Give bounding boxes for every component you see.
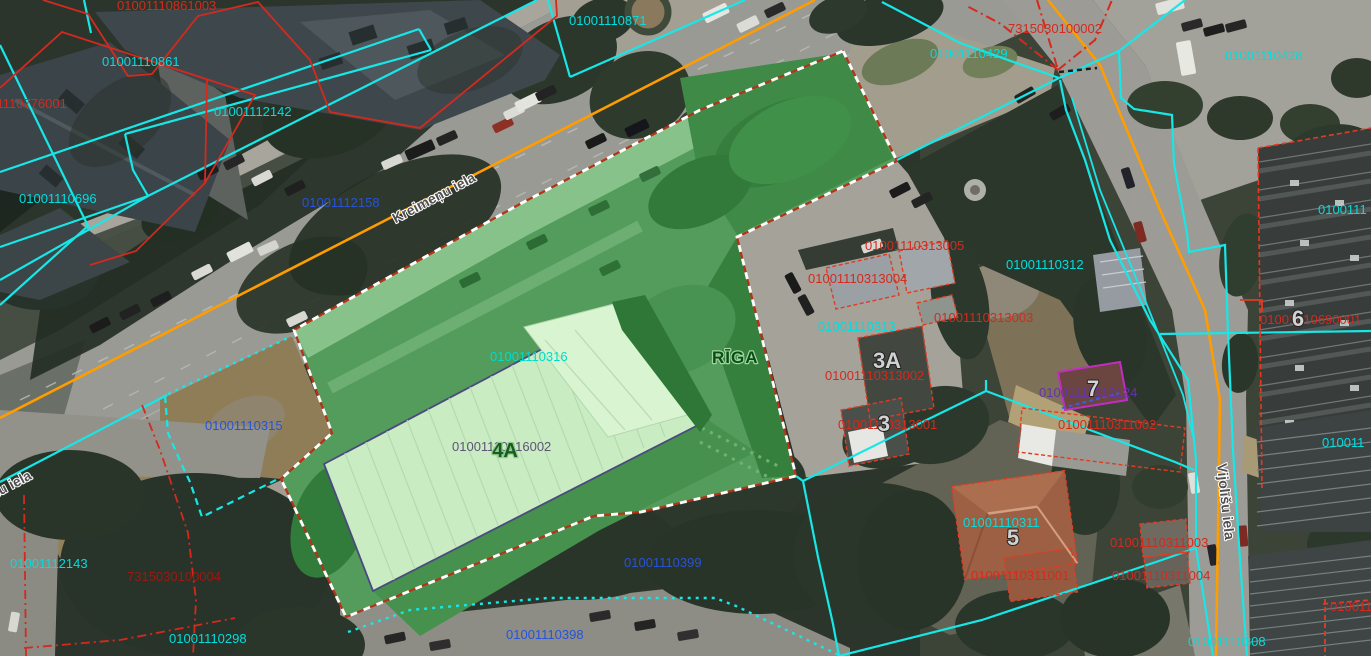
svg-text:01001110311004: 01001110311004 [1112, 568, 1210, 583]
svg-text:01001110399: 01001110399 [624, 555, 702, 570]
svg-text:01001110311003: 01001110311003 [1110, 535, 1208, 550]
svg-text:01001110871: 01001110871 [569, 13, 647, 28]
svg-text:01001112143: 01001112143 [10, 556, 88, 571]
svg-text:4A: 4A [492, 440, 518, 462]
svg-text:7315030100004: 7315030100004 [127, 569, 221, 584]
svg-text:01001110313004: 01001110313004 [808, 271, 907, 286]
svg-text:01001110861003: 01001110861003 [117, 0, 216, 13]
svg-text:01001110311001: 01001110311001 [971, 568, 1069, 583]
svg-text:01001110311002: 01001110311002 [1058, 417, 1156, 432]
svg-text:01001110312: 01001110312 [1006, 257, 1084, 272]
svg-text:3A: 3A [873, 348, 901, 373]
svg-text:01001110861: 01001110861 [102, 54, 180, 69]
svg-text:01001110313: 01001110313 [818, 319, 896, 334]
svg-text:7: 7 [1087, 376, 1099, 401]
svg-text:5: 5 [1007, 525, 1019, 550]
svg-text:01001110428: 01001110428 [1225, 48, 1303, 63]
svg-text:01001112158: 01001112158 [302, 195, 380, 210]
svg-text:01001110311: 01001110311 [963, 515, 1040, 530]
svg-text:001110776001: 001110776001 [0, 96, 67, 111]
svg-text:01001110298: 01001110298 [169, 631, 247, 646]
svg-text:3: 3 [878, 411, 890, 436]
svg-text:01001110398: 01001110398 [506, 627, 584, 642]
svg-text:01001110313003: 01001110313003 [934, 310, 1033, 325]
svg-text:01001112142: 01001112142 [214, 104, 292, 119]
svg-text:7315030100002: 7315030100002 [1008, 21, 1102, 36]
svg-text:01001110313005: 01001110313005 [865, 238, 964, 253]
svg-text:0100111: 0100111 [1330, 599, 1371, 614]
svg-text:01001110316: 01001110316 [490, 349, 568, 364]
svg-text:RĪGA: RĪGA [712, 348, 759, 367]
svg-text:6: 6 [1292, 306, 1304, 331]
svg-text:01001110308: 01001110308 [1188, 634, 1266, 649]
svg-text:010011: 010011 [1322, 435, 1364, 450]
svg-text:01001110696: 01001110696 [19, 191, 97, 206]
svg-text:01001110429: 01001110429 [930, 46, 1008, 61]
svg-text:01001110315: 01001110315 [205, 418, 283, 433]
svg-text:0100111: 0100111 [1318, 202, 1367, 217]
svg-text:01001610690001: 01001610690001 [1260, 312, 1361, 327]
